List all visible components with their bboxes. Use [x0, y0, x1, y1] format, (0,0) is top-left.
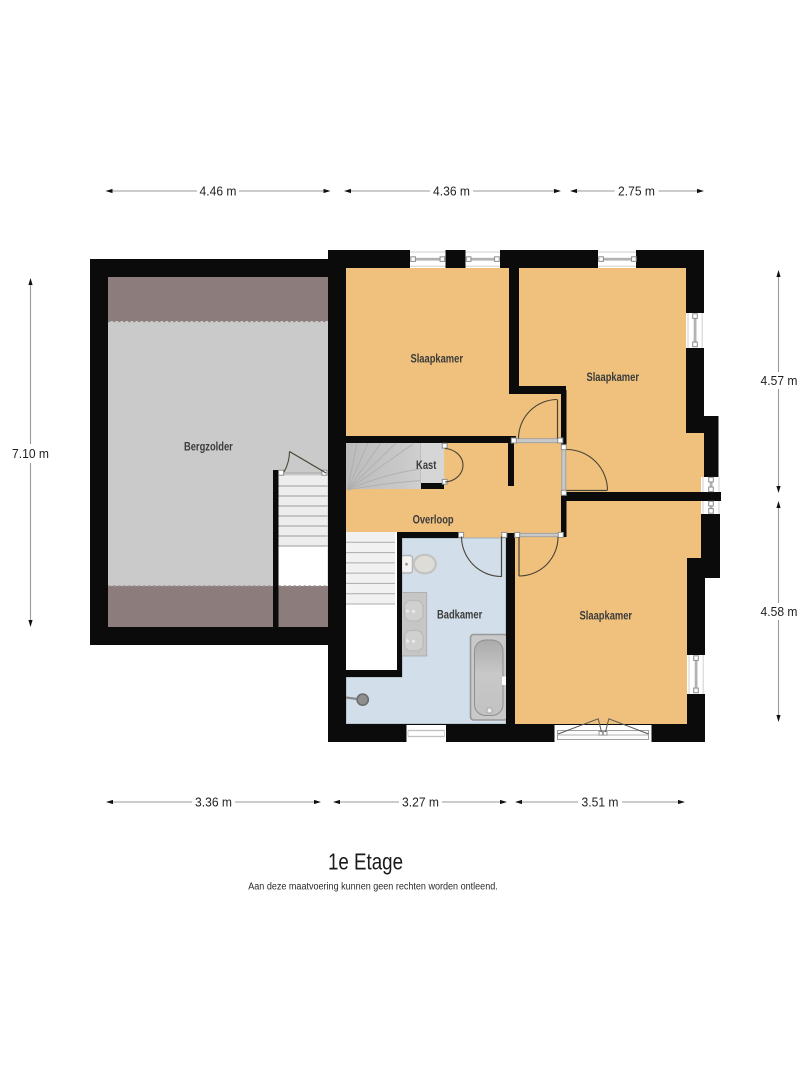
svg-text:4.46 m: 4.46 m: [200, 184, 237, 198]
svg-text:Kast: Kast: [416, 459, 437, 472]
svg-text:Overloop: Overloop: [413, 513, 454, 526]
svg-text:4.58 m: 4.58 m: [761, 605, 798, 619]
svg-text:Aan deze maatvoering kunnen ge: Aan deze maatvoering kunnen geen rechten…: [248, 881, 498, 893]
svg-text:Slaapkamer: Slaapkamer: [580, 609, 633, 622]
svg-text:3.51 m: 3.51 m: [582, 795, 619, 809]
svg-text:4.36 m: 4.36 m: [433, 184, 470, 198]
svg-text:3.27 m: 3.27 m: [402, 795, 439, 809]
svg-text:Bergzolder: Bergzolder: [184, 440, 234, 453]
svg-text:Slaapkamer: Slaapkamer: [586, 371, 639, 384]
svg-text:1e Etage: 1e Etage: [328, 850, 403, 875]
svg-text:Slaapkamer: Slaapkamer: [410, 352, 463, 365]
svg-text:3.36 m: 3.36 m: [195, 795, 232, 809]
svg-text:2.75 m: 2.75 m: [618, 184, 655, 198]
svg-text:4.57 m: 4.57 m: [761, 374, 798, 388]
svg-text:7.10 m: 7.10 m: [12, 447, 49, 461]
svg-text:Badkamer: Badkamer: [437, 608, 483, 621]
